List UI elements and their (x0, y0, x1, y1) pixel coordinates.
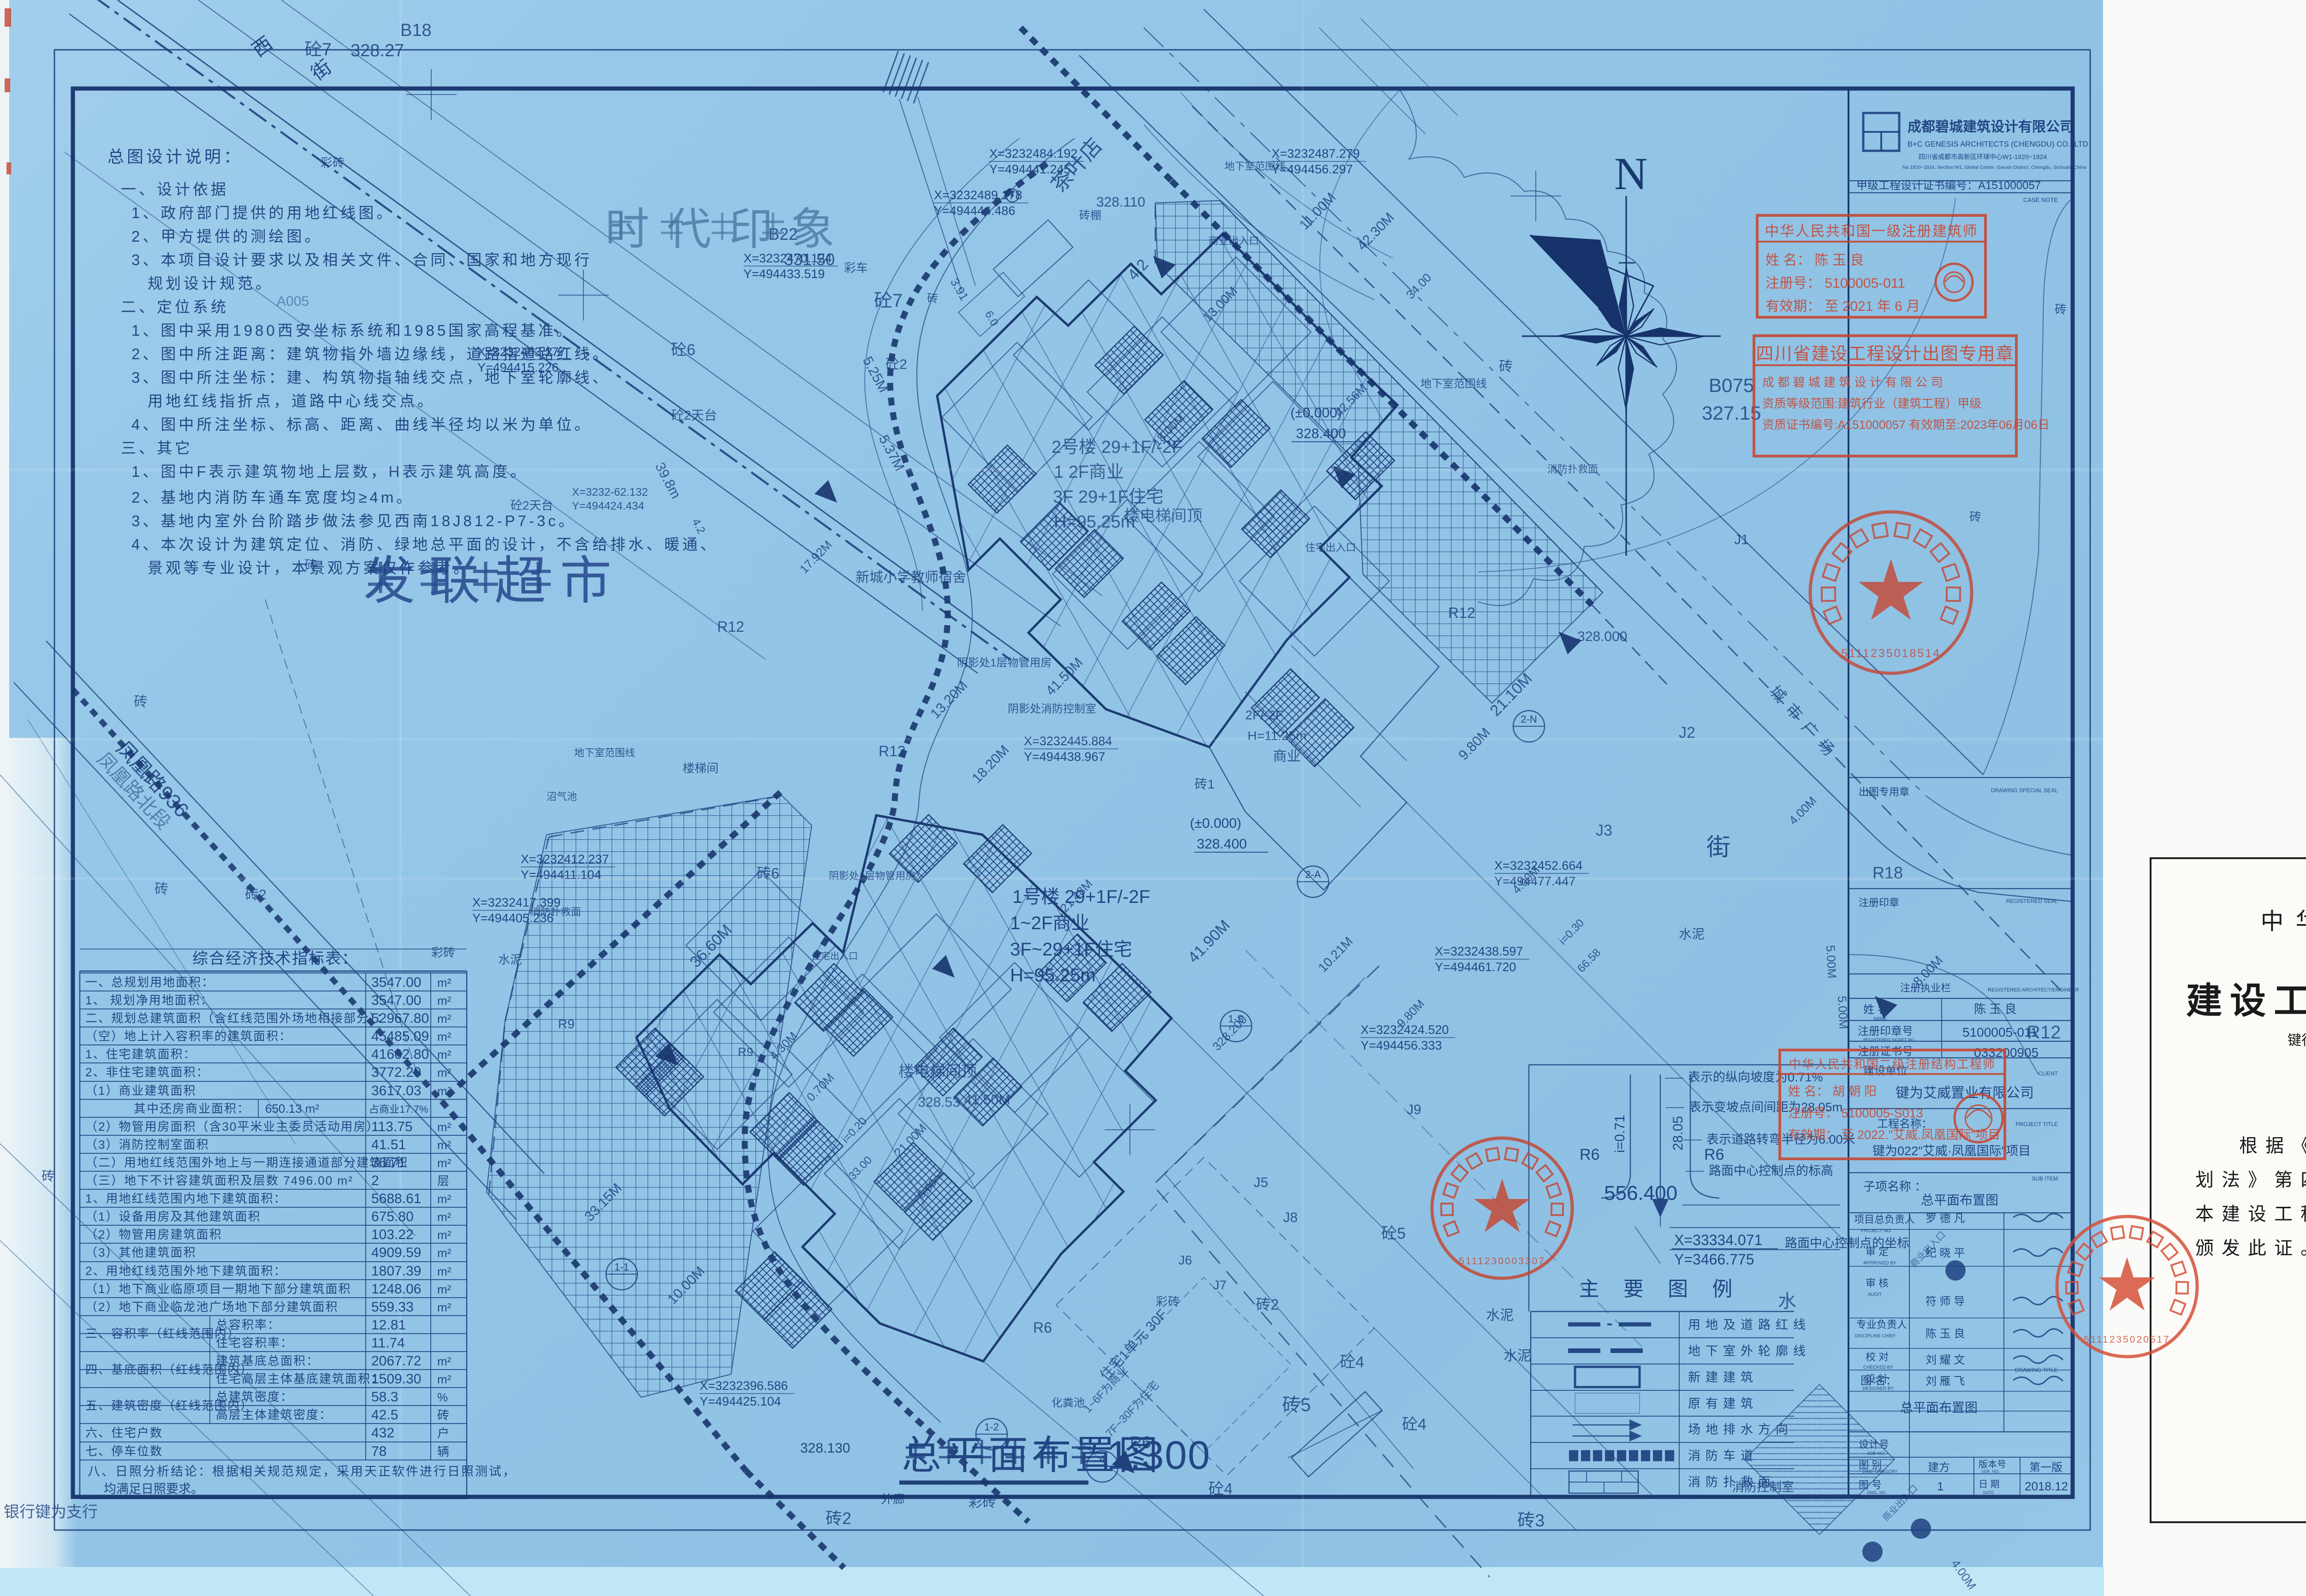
svg-text:R12: R12 (2027, 1022, 2061, 1043)
svg-text:42.30M: 42.30M (1354, 210, 1397, 254)
svg-text:姓 名: 姓 名 (1863, 1003, 1889, 1016)
svg-text:R9: R9 (738, 1045, 753, 1059)
svg-text:m²: m² (437, 1048, 452, 1062)
svg-text:78: 78 (371, 1444, 386, 1459)
svg-text:X=3232412.237: X=3232412.237 (521, 852, 609, 866)
svg-text:39.8m: 39.8m (652, 460, 683, 501)
svg-text:R6: R6 (1033, 1319, 1052, 1336)
svg-text:2018.12: 2018.12 (2025, 1479, 2068, 1493)
svg-text:H=95.25m: H=95.25m (1010, 965, 1096, 985)
svg-text:328.400: 328.400 (1197, 837, 1247, 852)
svg-text:m²: m² (437, 994, 452, 1008)
svg-text:砖: 砖 (437, 1408, 449, 1422)
svg-text:日 期: 日 期 (1979, 1479, 2000, 1489)
svg-text:9.80M: 9.80M (1456, 725, 1493, 763)
svg-text:PROJECT TITLE: PROJECT TITLE (2015, 1121, 2058, 1127)
svg-text:5111235018514: 5111235018514 (1841, 647, 1941, 660)
svg-text:罗 德 凡: 罗 德 凡 (1926, 1212, 1965, 1225)
svg-text:DATE: DATE (1983, 1490, 1994, 1495)
svg-text:Y=494424.434: Y=494424.434 (572, 500, 644, 512)
svg-text:X=3232487.279: X=3232487.279 (1272, 147, 1360, 160)
svg-text:2、非住宅建筑面积：: 2、非住宅建筑面积： (85, 1065, 209, 1079)
svg-text:彩车: 彩车 (844, 261, 868, 275)
svg-text:表示的纵向坡度为0.71%: 表示的纵向坡度为0.71% (1688, 1070, 1823, 1084)
svg-text:一、总规划用地面积：: 一、总规划用地面积： (85, 975, 214, 989)
svg-text:NAME: NAME (1873, 1016, 1887, 1021)
svg-text:六、住宅户数: 六、住宅户数 (85, 1426, 163, 1440)
svg-text:砼5: 砼5 (1381, 1225, 1406, 1242)
svg-text:甲级工程设计证书编号：A151000057: 甲级工程设计证书编号：A151000057 (1856, 179, 2041, 192)
svg-text:砖棚: 砖棚 (1079, 209, 1101, 222)
svg-text:砖: 砖 (1499, 359, 1513, 374)
svg-text:X=3232484.192: X=3232484.192 (989, 147, 1077, 160)
svg-text:A005: A005 (277, 294, 309, 309)
svg-text:Y=3466.775: Y=3466.775 (1674, 1251, 1754, 1268)
svg-text:占商业17.7%: 占商业17.7% (369, 1104, 428, 1115)
svg-text:Y=494444.486: Y=494444.486 (934, 204, 1015, 218)
svg-text:总容积率：: 总容积率： (216, 1318, 280, 1332)
svg-text:H=95.25m: H=95.25m (1054, 512, 1135, 532)
svg-text:X=3232438.597: X=3232438.597 (1435, 944, 1523, 958)
svg-text:DRAWING SPECIAL SEAL: DRAWING SPECIAL SEAL (1991, 787, 2058, 794)
svg-text:资质等级范围:建筑行业（建筑工程）甲级: 资质等级范围:建筑行业（建筑工程）甲级 (1762, 397, 1981, 410)
svg-text:1248.06: 1248.06 (371, 1282, 421, 1297)
svg-text:刘 耀 文: 刘 耀 文 (1926, 1354, 1965, 1366)
svg-text:1、图中采用1980西安坐标系统和1985国家高程基准。: 1、图中采用1980西安坐标系统和1985国家高程基准。 (131, 322, 574, 339)
svg-text:42.5: 42.5 (371, 1407, 398, 1423)
svg-text:3F~29+1F住宅: 3F~29+1F住宅 (1010, 939, 1132, 960)
svg-text:m²: m² (437, 976, 452, 990)
svg-text:R12: R12 (879, 743, 906, 759)
svg-text:52967.80: 52967.80 (371, 1011, 429, 1026)
svg-text:砖2: 砖2 (1256, 1296, 1279, 1313)
svg-text:328.000: 328.000 (1577, 629, 1627, 644)
svg-text:住宅高层主体基底建筑面积：: 住宅高层主体基底建筑面积： (216, 1372, 384, 1386)
svg-text:陈 玉 良: 陈 玉 良 (1926, 1328, 1965, 1340)
svg-text:商业出入口: 商业出入口 (1208, 235, 1259, 247)
svg-text:路面中心控制点的标高: 路面中心控制点的标高 (1709, 1164, 1833, 1178)
svg-text:4909.59: 4909.59 (371, 1245, 421, 1260)
svg-text:m²: m² (437, 1192, 452, 1206)
svg-text:（3）消防控制室面积: （3）消防控制室面积 (85, 1138, 209, 1151)
svg-text:DISCIPLINE CHIEF: DISCIPLINE CHIEF (1855, 1334, 1896, 1339)
svg-text:650.13 m²: 650.13 m² (265, 1102, 319, 1115)
svg-text:2: 2 (371, 1173, 379, 1188)
svg-text:m²: m² (437, 1120, 452, 1134)
svg-text:2号楼 29+1F/-2F: 2号楼 29+1F/-2F (1052, 438, 1183, 457)
svg-text:街: 街 (307, 56, 336, 85)
svg-text:注册号： 5100005-011: 注册号： 5100005-011 (1765, 276, 1905, 291)
svg-text:2067.72: 2067.72 (371, 1353, 421, 1369)
svg-text:1、用地红线范围内地下建筑面积：: 1、用地红线范围内地下建筑面积： (85, 1192, 286, 1205)
svg-text:水泥: 水泥 (1486, 1308, 1514, 1323)
svg-text:66.58: 66.58 (1575, 946, 1603, 975)
svg-text:1: 1 (1937, 1479, 1943, 1493)
svg-text:4.00M: 4.00M (1786, 794, 1819, 827)
svg-text:均满足日照要求。: 均满足日照要求。 (104, 1482, 203, 1496)
svg-text:3、本项目设计要求以及相关文件、合同、国家和地方现行: 3、本项目设计要求以及相关文件、合同、国家和地方现行 (131, 251, 592, 268)
svg-text:成都碧城建筑设计有限公司: 成都碧城建筑设计有限公司 (1908, 119, 2074, 135)
svg-text:（1）设备用房及其他建筑面积: （1）设备用房及其他建筑面积 (85, 1210, 261, 1223)
svg-text:0.70M: 0.70M (804, 1070, 837, 1104)
svg-text:675.80: 675.80 (371, 1209, 414, 1224)
svg-text:路面中心控制点的坐标: 路面中心控制点的坐标 (1785, 1236, 1909, 1250)
svg-text:彩砖: 彩砖 (1156, 1295, 1180, 1309)
svg-text:J7: J7 (1213, 1278, 1227, 1292)
svg-text:41.51: 41.51 (371, 1137, 406, 1152)
svg-text:X=3232-62.132: X=3232-62.132 (572, 486, 648, 498)
svg-text:5.00M: 5.00M (1824, 945, 1839, 979)
svg-text:4.00M: 4.00M (1949, 1557, 1979, 1592)
svg-text:113.75: 113.75 (371, 1119, 413, 1134)
svg-text:3、图中所注坐标：建、构筑物指轴线交点，地下室轮廓线、: 3、图中所注坐标：建、构筑物指轴线交点，地下室轮廓线、 (131, 369, 610, 386)
svg-text:m²: m² (437, 1084, 452, 1098)
svg-text:辆: 辆 (437, 1445, 449, 1459)
svg-text:17.92M: 17.92M (797, 538, 835, 576)
svg-text:（1）商业建筑面积: （1）商业建筑面积 (85, 1084, 196, 1098)
svg-text:3、基地内室外台阶踏步做法参见西南18J812-P7-3c。: 3、基地内室外台阶踏步做法参见西南18J812-P7-3c。 (131, 512, 576, 529)
svg-text:AUDIT: AUDIT (1868, 1292, 1882, 1297)
svg-text:No.1820~1824, Section W1, Glob: No.1820~1824, Section W1, Global Center,… (1902, 165, 2086, 170)
svg-text:二、规划总建筑面积（含红线范围外场地相接部分）：: 二、规划总建筑面积（含红线范围外场地相接部分）： (85, 1011, 389, 1025)
svg-text:（2）物管用房面积（含30平米业主委员活动用房）: （2）物管用房面积（含30平米业主委员活动用房） (85, 1120, 379, 1133)
svg-text:i=0.71: i=0.71 (1612, 1115, 1628, 1153)
svg-text:2-N: 2-N (1521, 713, 1537, 725)
svg-text:商业出入口: 商业出入口 (1880, 1483, 1920, 1524)
svg-text:刘 雁 飞: 刘 雁 飞 (1926, 1375, 1965, 1388)
svg-text:36.71: 36.71 (371, 1155, 406, 1170)
svg-text:3547.00: 3547.00 (371, 975, 421, 990)
svg-text:砼4: 砼4 (1402, 1416, 1426, 1433)
svg-text:水泥: 水泥 (1679, 927, 1705, 941)
svg-text:41662.80: 41662.80 (371, 1047, 429, 1062)
svg-text:m²: m² (437, 1372, 452, 1386)
svg-text:水泥: 水泥 (1504, 1348, 1531, 1364)
svg-text:i=0.30: i=0.30 (1557, 917, 1587, 947)
svg-text:注册印章: 注册印章 (1859, 897, 1899, 908)
svg-text:审 定: 审 定 (1866, 1246, 1889, 1258)
svg-text:2、用地红线范围外地下建筑面积：: 2、用地红线范围外地下建筑面积： (85, 1264, 286, 1278)
svg-text:18.20M: 18.20M (969, 742, 1012, 786)
svg-text:J3: J3 (1596, 822, 1612, 839)
svg-text:商业: 商业 (1273, 749, 1301, 764)
svg-text:%: % (437, 1390, 448, 1404)
svg-text:1-2: 1-2 (984, 1421, 999, 1433)
svg-text:2、甲方提供的测绘图。: 2、甲方提供的测绘图。 (131, 228, 322, 245)
svg-text:砖3: 砖3 (1517, 1511, 1545, 1531)
svg-text:m²: m² (437, 1210, 452, 1224)
svg-text:2、图中所注距离：建筑物指外墙边缘线，道路指道路红线。: 2、图中所注距离：建筑物指外墙边缘线，道路指道路红线。 (131, 345, 610, 362)
svg-text:阴影处1层物管用房: 阴影处1层物管用房 (957, 657, 1052, 669)
svg-text:注册执业栏: 注册执业栏 (1900, 982, 1951, 994)
svg-text:3617.03: 3617.03 (371, 1083, 421, 1098)
svg-text:（2）物管用房建筑面积: （2）物管用房建筑面积 (85, 1228, 222, 1241)
svg-text:4.2: 4.2 (689, 516, 708, 536)
svg-text:2F/-2F: 2F/-2F (1245, 708, 1283, 722)
svg-text:砖2: 砖2 (826, 1509, 851, 1528)
svg-text:城市广场: 城市广场 (1766, 682, 1843, 765)
svg-text:原有建筑: 原有建筑 (1688, 1397, 1758, 1411)
svg-text:APPROVED BY: APPROVED BY (1863, 1261, 1896, 1266)
svg-text:m²: m² (437, 1156, 452, 1170)
svg-text:砼7: 砼7 (874, 291, 903, 311)
svg-text:沼气池: 沼气池 (547, 791, 577, 802)
svg-text:时代印象: 时代印象 (605, 205, 852, 254)
svg-text:m²: m² (437, 1066, 452, 1080)
svg-text:高层主体建筑密度：: 高层主体建筑密度： (216, 1408, 332, 1422)
svg-text:m²: m² (437, 1264, 452, 1278)
svg-text:1-1: 1-1 (614, 1261, 629, 1273)
svg-text:三、其它: 三、其它 (121, 439, 193, 457)
svg-text:J9: J9 (1407, 1102, 1421, 1117)
svg-text:(±0.000): (±0.000) (1190, 816, 1242, 831)
svg-text:REGISTERED ARCHITECT/ENGINEER: REGISTERED ARCHITECT/ENGINEER (1988, 987, 2079, 993)
svg-text:4、本次设计为建筑定位、消防、绿地总平面的设计，不含给排水、: 4、本次设计为建筑定位、消防、绿地总平面的设计，不含给排水、暖通、 (131, 536, 718, 553)
svg-text:键为022"艾威·凤凰国际"项目: 键为022"艾威·凤凰国际"项目 (1872, 1144, 2031, 1158)
svg-text:10.21M: 10.21M (1315, 934, 1355, 975)
svg-text:四川省成都市高新区环球中心W1-1820~1824: 四川省成都市高新区环球中心W1-1820~1824 (1919, 153, 2047, 160)
svg-text:103.22: 103.22 (371, 1227, 414, 1242)
svg-text:CLIENT: CLIENT (2038, 1070, 2058, 1077)
svg-text:审 核: 审 核 (1866, 1277, 1889, 1289)
svg-text:Y=494441.245: Y=494441.245 (989, 162, 1070, 176)
svg-text:砖: 砖 (1969, 510, 1981, 524)
svg-text:5100005-011: 5100005-011 (1962, 1025, 2038, 1039)
svg-text:REGISTERED SEAL: REGISTERED SEAL (2006, 898, 2058, 904)
svg-text:58.3: 58.3 (371, 1389, 398, 1405)
svg-text:住宅出入口: 住宅出入口 (812, 951, 858, 961)
svg-text:CHECKED BY: CHECKED BY (1863, 1365, 1893, 1370)
svg-text:西: 西 (248, 32, 277, 61)
svg-text:VER. NO.: VER. NO. (1981, 1469, 2000, 1474)
svg-text:X=33334.071: X=33334.071 (1674, 1232, 1762, 1248)
svg-text:33.00: 33.00 (846, 1154, 874, 1182)
svg-text:DRAWING TITLE: DRAWING TITLE (2015, 1367, 2058, 1373)
svg-text:（1）地下商业临原项目一期地下部分建筑面积: （1）地下商业临原项目一期地下部分建筑面积 (85, 1282, 351, 1296)
svg-text:DWG. NO.: DWG. NO. (1867, 1490, 1887, 1495)
svg-text:R12: R12 (717, 618, 744, 635)
svg-text:1、图中F表示建筑物地上层数，H表示建筑高度。: 1、图中F表示建筑物地上层数，H表示建筑高度。 (131, 463, 528, 480)
svg-text:X=3232489.178: X=3232489.178 (934, 188, 1022, 202)
svg-text:用地红线指折点，道路中心线交点。: 用地红线指折点，道路中心线交点。 (148, 392, 435, 409)
svg-text:出图专用章: 出图专用章 (1859, 786, 1909, 798)
svg-text:资质证书编号:A151000057 有效期至:2023年0: 资质证书编号:A151000057 有效期至:2023年06月06日 (1762, 418, 2050, 432)
svg-text:建筑基底总面积：: 建筑基底总面积： (216, 1354, 319, 1368)
svg-text:地下室范围线: 地下室范围线 (574, 747, 635, 759)
svg-text:328.130: 328.130 (800, 1441, 850, 1456)
svg-text:（三）地下不计容建筑面积及层数 7496.00 m²: （三）地下不计容建筑面积及层数 7496.00 m² (85, 1174, 353, 1187)
svg-text:砖: 砖 (927, 292, 938, 305)
svg-text:阴影处消防控制室: 阴影处消防控制室 (1008, 703, 1096, 715)
svg-text:砼4: 砼4 (1340, 1353, 1364, 1371)
svg-text:中华人民共和国一级注册建筑师: 中华人民共和国一级注册建筑师 (1765, 223, 1978, 239)
svg-text:6.0: 6.0 (982, 309, 1001, 328)
svg-text:m²: m² (437, 1246, 452, 1260)
svg-text:R6: R6 (1580, 1146, 1599, 1163)
svg-text:砖1: 砖1 (1195, 777, 1215, 791)
svg-text:m²: m² (437, 1138, 452, 1152)
svg-text:银行键为支行: 银行键为支行 (4, 1503, 98, 1521)
svg-text:陈 玉 良: 陈 玉 良 (1974, 1002, 2016, 1016)
svg-text:559.33: 559.33 (371, 1299, 414, 1315)
svg-text:七、停车位数: 七、停车位数 (85, 1444, 163, 1458)
svg-text:5.37M: 5.37M (876, 433, 907, 474)
svg-text:11.74: 11.74 (371, 1335, 405, 1351)
svg-text:327.15: 327.15 (1702, 402, 1761, 424)
svg-text:3772.29: 3772.29 (371, 1065, 421, 1080)
svg-text:CASE NOTE: CASE NOTE (2023, 196, 2058, 203)
svg-text:注册号： 5100005-S013: 注册号： 5100005-S013 (1788, 1106, 1923, 1120)
svg-text:1、政府部门提供的用地红线图。: 1、政府部门提供的用地红线图。 (131, 204, 394, 221)
svg-text:328.53: 328.53 (918, 1095, 960, 1110)
svg-text:R9: R9 (558, 1017, 575, 1031)
svg-text:景观等专业设计，本景观方案仅作参考。: 景观等专业设计，本景观方案仅作参考。 (148, 559, 471, 576)
svg-text:其中还房商业面积：: 其中还房商业面积： (134, 1102, 250, 1115)
svg-text:1:300: 1:300 (1107, 1433, 1211, 1477)
svg-text:注册证书号: 注册证书号 (1858, 1045, 1913, 1058)
svg-text:1-S: 1-S (1228, 1013, 1244, 1025)
svg-text:Y=494433.519: Y=494433.519 (743, 267, 825, 281)
svg-text:PROJECT NO.: PROJECT NO. (1861, 1228, 1892, 1234)
svg-text:X=3232396.586: X=3232396.586 (700, 1379, 788, 1393)
svg-text:Y=494438.967: Y=494438.967 (1024, 750, 1105, 764)
svg-text:水: 水 (1778, 1291, 1796, 1311)
svg-text:砖2: 砖2 (245, 887, 267, 902)
svg-text:第一版: 第一版 (2029, 1461, 2062, 1474)
svg-text:符 师 导: 符 师 导 (1926, 1295, 1965, 1308)
svg-text:REGISTERED SIGNET NO.: REGISTERED SIGNET NO. (1863, 1038, 1915, 1042)
svg-text:2、基地内消防车通车宽度均≥4m。: 2、基地内消防车通车宽度均≥4m。 (131, 489, 414, 506)
svg-text:成 都 碧 城 建 筑 设 计 有 限 公 司: 成 都 碧 城 建 筑 设 计 有 限 公 司 (1762, 375, 1943, 389)
svg-text:主 要 图 例: 主 要 图 例 (1579, 1278, 1742, 1300)
svg-text:3547.00: 3547.00 (371, 993, 421, 1008)
svg-text:外廊: 外廊 (881, 1492, 905, 1506)
svg-text:八、日照分析结论：根据相关规范规定，采用天正软件进行日照测试: 八、日照分析结论：根据相关规范规定，采用天正软件进行日照测试， (88, 1465, 517, 1478)
svg-text:（3）其他建筑面积: （3）其他建筑面积 (85, 1246, 196, 1259)
svg-text:Y=494425.104: Y=494425.104 (700, 1394, 781, 1408)
svg-text:1509.30: 1509.30 (371, 1371, 421, 1387)
svg-text:328.27: 328.27 (351, 41, 404, 60)
svg-text:地下室外轮廓线: 地下室外轮廓线 (1688, 1344, 1811, 1358)
svg-text:专业负责人: 专业负责人 (1856, 1319, 1907, 1330)
svg-text:（空）地上计入容积率的建筑面积：: （空）地上计入容积率的建筑面积： (85, 1029, 292, 1043)
svg-text:综合经济技术指标表：: 综合经济技术指标表： (192, 950, 358, 967)
svg-text:1、 规划净用地面积：: 1、 规划净用地面积： (85, 993, 214, 1007)
svg-text:432: 432 (371, 1425, 394, 1441)
svg-text:m²: m² (437, 1354, 452, 1368)
svg-text:新建建筑: 新建建筑 (1688, 1371, 1758, 1384)
svg-text:12.81: 12.81 (371, 1317, 406, 1333)
svg-text:地下室范围线: 地下室范围线 (1224, 160, 1285, 172)
svg-text:i=0.20: i=0.20 (839, 1115, 869, 1145)
svg-text:砖: 砖 (42, 1169, 54, 1183)
svg-text:姓 名： 胡 朝 阳: 姓 名： 胡 朝 阳 (1788, 1085, 1877, 1098)
svg-text:3F 29+1F住宅: 3F 29+1F住宅 (1053, 487, 1164, 507)
svg-text:1807.39: 1807.39 (371, 1264, 421, 1279)
svg-text:(±0.000): (±0.000) (1290, 405, 1342, 421)
svg-text:姓 名： 陈 玉 良: 姓 名： 陈 玉 良 (1765, 253, 1864, 268)
svg-text:新城小学教师宿舍: 新城小学教师宿舍 (856, 570, 966, 585)
svg-text:砖: 砖 (2055, 303, 2067, 316)
svg-text:住宅出入口: 住宅出入口 (1305, 542, 1356, 553)
svg-text:用地及道路红线: 用地及道路红线 (1688, 1318, 1811, 1332)
svg-text:5111235020517: 5111235020517 (2084, 1335, 2170, 1345)
svg-text:砖: 砖 (134, 694, 148, 710)
svg-text:m²: m² (437, 1012, 452, 1026)
svg-text:注册印章号: 注册印章号 (1858, 1025, 1913, 1038)
svg-text:楼梯间: 楼梯间 (683, 761, 719, 775)
svg-text:J5: J5 (1254, 1175, 1268, 1190)
svg-text:J6: J6 (1178, 1253, 1192, 1267)
svg-text:41.50M: 41.50M (964, 1092, 1010, 1108)
svg-text:28.05: 28.05 (1670, 1116, 1686, 1151)
svg-text:砖5: 砖5 (1282, 1395, 1311, 1415)
svg-text:m²: m² (437, 1030, 452, 1044)
svg-text:（二）用地红线范围外地上与一期连接通道部分建筑面积: （二）用地红线范围外地上与一期连接通道部分建筑面积 (85, 1156, 408, 1169)
svg-text:5111230003307: 5111230003307 (1459, 1256, 1545, 1267)
svg-text:化粪池: 化粪池 (1052, 1397, 1085, 1409)
svg-text:层: 层 (437, 1174, 449, 1188)
svg-text:规划设计规范。: 规划设计规范。 (148, 275, 273, 292)
svg-text:子项名称 ：: 子项名称 ： (1863, 1180, 1926, 1193)
svg-text:中华人民共和国二级注册结构工程师: 中华人民共和国二级注册结构工程师 (1789, 1057, 1996, 1071)
svg-text:砼2: 砼2 (886, 357, 907, 372)
svg-text:B+C GENESIS ARCHITECTS (CHENGD: B+C GENESIS ARCHITECTS (CHENGDU) CO., LT… (1908, 140, 2088, 148)
svg-text:四川省建设工程设计出图专用章: 四川省建设工程设计出图专用章 (1756, 344, 2014, 364)
svg-text:总图设计说明：: 总图设计说明： (107, 147, 243, 166)
svg-text:m²: m² (437, 1300, 452, 1314)
svg-text:m²: m² (437, 1282, 452, 1296)
svg-text:1~2F商业: 1~2F商业 (1010, 913, 1089, 933)
svg-text:彩砖: 彩砖 (431, 946, 455, 960)
svg-text:砼6: 砼6 (671, 341, 695, 359)
svg-text:3.91: 3.91 (948, 276, 971, 303)
svg-text:图 名：: 图 名： (1860, 1375, 1897, 1387)
svg-text:1 2F商业: 1 2F商业 (1054, 463, 1124, 482)
svg-text:校 对: 校 对 (1866, 1351, 1889, 1363)
svg-text:彩砖: 彩砖 (321, 156, 345, 170)
svg-text:N: N (1614, 148, 1647, 199)
svg-text:砼2天台: 砼2天台 (511, 498, 553, 512)
svg-text:41.90M: 41.90M (1184, 917, 1233, 967)
svg-text:楼电梯间顶: 楼电梯间顶 (898, 1063, 977, 1080)
svg-text:项目总负责人: 项目总负责人 (1854, 1214, 1915, 1225)
svg-text:SUB ITEM: SUB ITEM (2032, 1175, 2058, 1182)
svg-text:总平面布置图: 总平面布置图 (1900, 1400, 1978, 1415)
svg-text:住宅1单元 30F: 住宅1单元 30F (1097, 1306, 1170, 1383)
svg-text:328.110: 328.110 (1096, 195, 1145, 210)
svg-text:1、住宅建筑面积：: 1、住宅建筑面积： (85, 1047, 196, 1061)
svg-text:4、图中所注坐标、标高、距离、曲线半径均以米为单位。: 4、图中所注坐标、标高、距离、曲线半径均以米为单位。 (131, 416, 592, 433)
svg-text:Y=494461.720: Y=494461.720 (1435, 960, 1516, 974)
svg-text:砖: 砖 (155, 882, 168, 897)
svg-text:R6: R6 (1704, 1146, 1724, 1163)
svg-text:一、设计依据: 一、设计依据 (121, 181, 229, 198)
svg-text:总平面布置图: 总平面布置图 (1921, 1193, 1998, 1207)
svg-text:砼2天台: 砼2天台 (671, 408, 717, 422)
svg-text:Y=494456.333: Y=494456.333 (1361, 1038, 1442, 1052)
svg-text:楼电梯间顶: 楼电梯间顶 (1124, 507, 1202, 525)
svg-text:45485.09: 45485.09 (371, 1029, 429, 1044)
svg-text:J1: J1 (1734, 532, 1749, 547)
svg-text:街: 街 (1706, 834, 1730, 861)
svg-text:建方: 建方 (1928, 1461, 1950, 1474)
svg-text:5688.61: 5688.61 (371, 1191, 421, 1206)
svg-text:消防扑救面: 消防扑救面 (530, 906, 581, 918)
svg-text:R12: R12 (1448, 605, 1475, 621)
svg-text:住宅容积率：: 住宅容积率： (216, 1336, 293, 1350)
svg-text:B075: B075 (1709, 374, 1754, 396)
